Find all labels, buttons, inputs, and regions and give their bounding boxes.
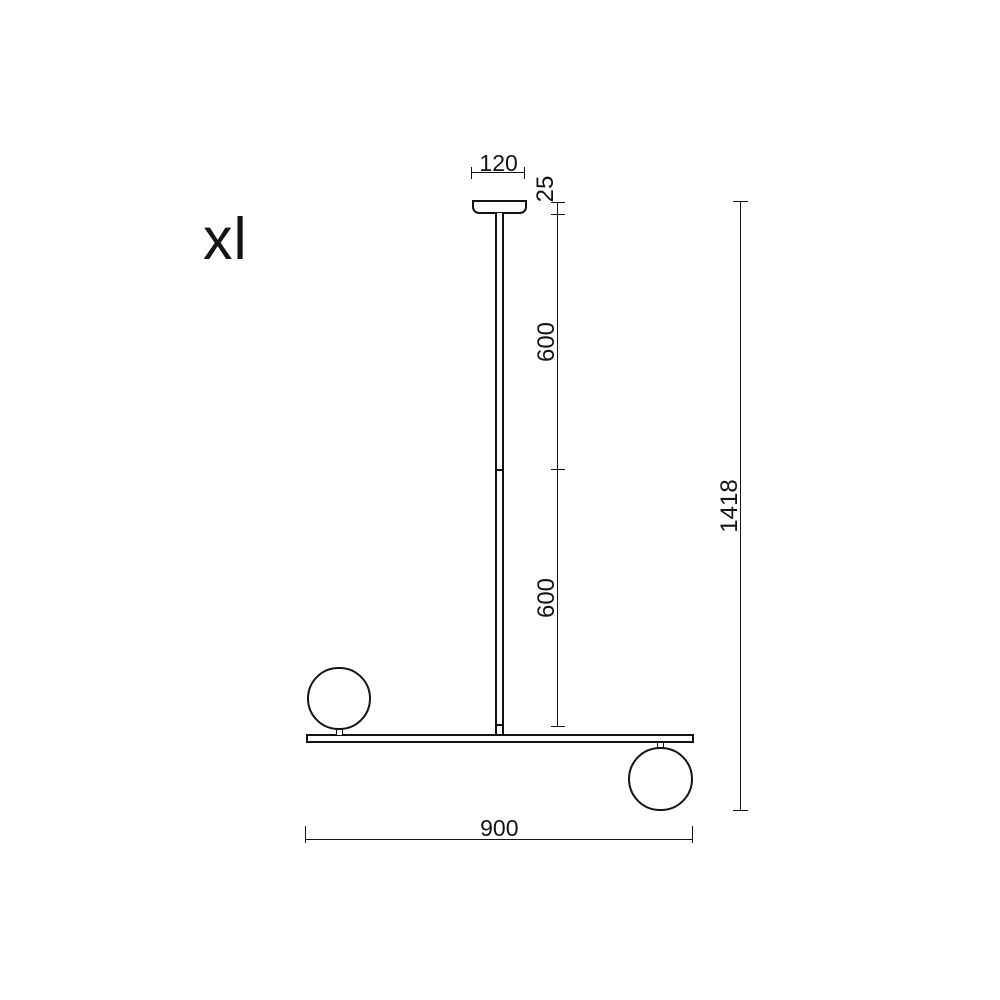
dim-label-bar-length: 900 — [306, 817, 693, 840]
right-globe — [628, 747, 692, 811]
dim-tick — [551, 726, 564, 727]
suspension-rod — [495, 213, 504, 740]
rod-joint-upper — [495, 469, 504, 471]
variant-label: xl — [203, 210, 248, 269]
dim-label-overall-height: 1418 — [718, 480, 742, 533]
left-globe — [307, 667, 370, 730]
dim-tick — [733, 810, 748, 811]
dim-line-rod-chain — [557, 203, 558, 727]
dim-label-canopy-drop: 25 — [534, 176, 558, 203]
dim-tick — [551, 469, 564, 470]
dim-label-lower-rod: 600 — [535, 578, 559, 618]
ceiling-canopy — [472, 200, 527, 214]
dim-label-canopy-width: 120 — [472, 152, 525, 175]
dim-tick — [551, 214, 564, 215]
rod-joint-lower — [495, 724, 504, 726]
dim-label-upper-rod: 600 — [535, 322, 559, 362]
technical-drawing-canvas: xl 120 25 600 600 1418 900 — [0, 0, 1000, 1000]
horizontal-bar — [306, 734, 694, 743]
dim-tick — [733, 201, 748, 202]
